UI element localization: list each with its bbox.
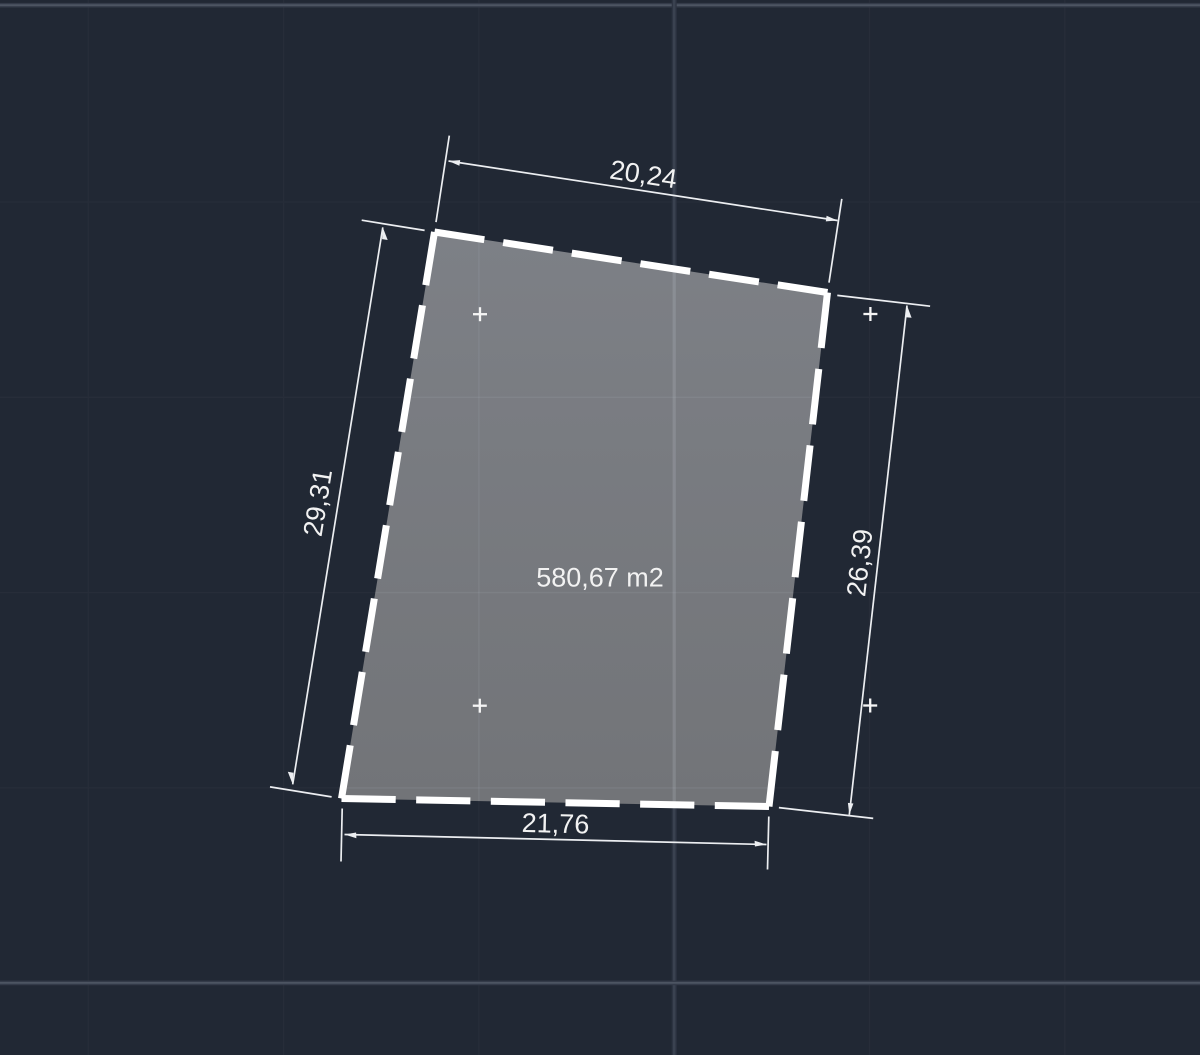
svg-text:580,67 m2: 580,67 m2 [536,563,664,593]
svg-text:21,76: 21,76 [521,808,589,840]
